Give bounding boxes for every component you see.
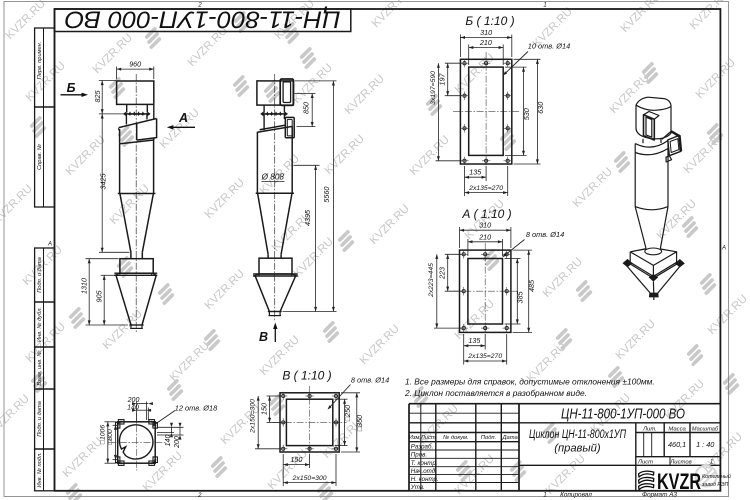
svg-text:1: 1: [543, 493, 546, 499]
svg-text:Т. контр.: Т. контр.: [411, 460, 438, 467]
svg-text:KVZR.RU: KVZR.RU: [453, 52, 497, 96]
svg-text:2х135=270: 2х135=270: [467, 353, 502, 360]
svg-text:В ( 1:10 ): В ( 1:10 ): [282, 369, 331, 383]
svg-text:KVZR.RU: KVZR.RU: [61, 436, 105, 480]
svg-text:Утв.: Утв.: [410, 484, 425, 491]
svg-text:2х150=300: 2х150=300: [292, 475, 327, 482]
svg-text:140: 140: [165, 435, 172, 447]
svg-text:Масса: Масса: [668, 426, 686, 432]
svg-text:KVZR.RU: KVZR.RU: [24, 60, 68, 104]
svg-text:А ( 1:10 ): А ( 1:10 ): [461, 207, 511, 221]
svg-text:ЦН-11-800-1УП-000 ВО: ЦН-11-800-1УП-000 ВО: [65, 6, 341, 33]
svg-text:385: 385: [516, 291, 525, 304]
svg-text:Циклон ЦН-11-800х1УП: Циклон ЦН-11-800х1УП: [529, 429, 627, 441]
svg-text:150: 150: [290, 455, 302, 464]
svg-text:KVZR: KVZR: [657, 469, 701, 494]
svg-text:KVZR.RU: KVZR.RU: [168, 340, 212, 384]
svg-text:630: 630: [536, 102, 545, 114]
svg-text:Н. контр.: Н. контр.: [411, 476, 439, 483]
svg-text:KVZR.RU: KVZR.RU: [4, 0, 48, 42]
svg-text:KVZR.RU: KVZR.RU: [706, 293, 750, 337]
svg-text:А: А: [47, 242, 52, 248]
svg-text:KVZR.RU: KVZR.RU: [368, 203, 412, 247]
svg-text:8 отв. Ø14: 8 отв. Ø14: [526, 230, 564, 239]
svg-text:В: В: [259, 330, 268, 344]
svg-text:1310: 1310: [80, 278, 89, 294]
svg-text:200: 200: [174, 436, 181, 449]
svg-text:KVZR.RU: KVZR.RU: [0, 393, 32, 437]
svg-text:KVZR.RU: KVZR.RU: [694, 57, 738, 101]
svg-text:12 отв. Ø18: 12 отв. Ø18: [175, 403, 218, 412]
svg-text:завод РЭП: завод РЭП: [701, 482, 729, 488]
svg-text:140: 140: [127, 405, 139, 412]
svg-text:197: 197: [438, 73, 447, 86]
svg-text:2х223=445: 2х223=445: [428, 263, 435, 298]
svg-text:Котельный: Котельный: [702, 473, 731, 480]
svg-text:KVZR.RU: KVZR.RU: [108, 183, 152, 227]
svg-text:200: 200: [127, 397, 140, 404]
svg-text:530: 530: [522, 108, 531, 120]
svg-text:№ докум.: № докум.: [443, 435, 469, 441]
svg-text:KVZR.RU: KVZR.RU: [370, 0, 414, 30]
svg-text:KVZR.RU: KVZR.RU: [323, 133, 367, 177]
svg-text:1. Все размеры для справок, до: 1. Все размеры для справок, допустимые о…: [405, 377, 655, 387]
svg-text:Справ. №: Справ. №: [37, 144, 43, 170]
svg-text:□350: □350: [355, 415, 364, 431]
svg-text:ЦН-11-800-1УП-000 ВО: ЦН-11-800-1УП-000 ВО: [561, 407, 685, 423]
svg-text:210: 210: [479, 38, 492, 47]
svg-text:850: 850: [302, 102, 311, 114]
svg-text:Подп. и дата: Подп. и дата: [37, 401, 43, 437]
svg-text:135: 135: [469, 167, 482, 176]
svg-text:KVZR.RU: KVZR.RU: [0, 183, 35, 227]
svg-text:150: 150: [259, 403, 268, 415]
svg-text:Перв. примен.: Перв. примен.: [37, 42, 43, 80]
svg-text:2х135=270: 2х135=270: [468, 185, 503, 192]
svg-text:310: 310: [479, 220, 491, 229]
svg-text:□800: □800: [107, 429, 114, 445]
svg-text:KVZR.RU: KVZR.RU: [291, 62, 335, 106]
svg-text:KVZR.RU: KVZR.RU: [408, 134, 452, 178]
svg-text:10 отв. Ø14: 10 отв. Ø14: [528, 42, 570, 51]
svg-text:Лит.: Лит.: [642, 426, 657, 432]
svg-text:KVZR.RU: KVZR.RU: [358, 323, 402, 367]
svg-text:KVZR.RU: KVZR.RU: [141, 450, 185, 494]
svg-text:3425: 3425: [99, 173, 108, 190]
svg-text:Нач.отд.: Нач.отд.: [411, 468, 437, 475]
svg-text:KVZR.RU: KVZR.RU: [64, 134, 108, 178]
svg-text:Масштаб: Масштаб: [692, 426, 719, 432]
svg-text:825: 825: [93, 90, 102, 103]
svg-text:Инв. № дубл.: Инв. № дубл.: [37, 307, 43, 342]
svg-text:Дата: Дата: [501, 435, 518, 441]
svg-text:905: 905: [95, 290, 104, 303]
svg-text:960: 960: [129, 59, 141, 68]
svg-text:Пров.: Пров.: [411, 452, 427, 459]
svg-text:KVZR.RU: KVZR.RU: [701, 431, 745, 475]
svg-text:KVZR.RU: KVZR.RU: [571, 166, 615, 210]
svg-text:Подп. и дата: Подп. и дата: [37, 257, 43, 293]
svg-text:KVZR.RU: KVZR.RU: [203, 177, 247, 221]
svg-text:485: 485: [527, 279, 536, 292]
svg-text:Листов: Листов: [669, 460, 691, 466]
svg-text:5560: 5560: [322, 187, 331, 203]
svg-text:1: 1: [710, 459, 714, 466]
svg-text:KVZR.RU: KVZR.RU: [24, 321, 68, 365]
svg-text:KVZR.RU: KVZR.RU: [614, 318, 658, 362]
svg-text:Взам. инв. №: Взам. инв. №: [37, 350, 43, 385]
svg-text:Разраб.: Разраб.: [411, 443, 433, 450]
svg-text:(правый): (правый): [554, 443, 601, 455]
svg-text:3х197=590: 3х197=590: [430, 71, 437, 105]
svg-text:KVZR.RU: KVZR.RU: [266, 448, 310, 492]
svg-text:1 : 40: 1 : 40: [696, 440, 714, 449]
svg-text:2: 2: [197, 3, 202, 9]
svg-text:KVZR.RU: KVZR.RU: [688, 0, 732, 32]
svg-text:Лист: Лист: [637, 460, 653, 466]
svg-text:Изм.: Изм.: [409, 435, 421, 441]
svg-text:KVZR.RU: KVZR.RU: [203, 268, 247, 312]
svg-text:2: 2: [197, 493, 202, 499]
svg-text:KVZR.RU: KVZR.RU: [619, 0, 663, 35]
svg-text:KVZR.RU: KVZR.RU: [541, 256, 585, 300]
svg-text:223: 223: [438, 267, 447, 280]
svg-text:□250: □250: [343, 405, 352, 421]
svg-text:460,1: 460,1: [668, 440, 686, 449]
svg-text:Копировал: Копировал: [560, 491, 592, 498]
svg-text:1: 1: [543, 3, 546, 9]
svg-text:□1006: □1006: [99, 425, 106, 444]
svg-text:А: А: [721, 245, 726, 251]
svg-text:KVZR.RU: KVZR.RU: [292, 236, 336, 280]
svg-text:8 отв. Ø14: 8 отв. Ø14: [351, 376, 389, 385]
svg-text:Инв. № подл.: Инв. № подл.: [37, 452, 43, 487]
svg-text:2. Циклон поставляется в разоб: 2. Циклон поставляется в разобранном вид…: [404, 388, 587, 398]
svg-text:Б: Б: [67, 81, 76, 95]
svg-text:2х150=300: 2х150=300: [250, 399, 257, 434]
svg-text:135: 135: [468, 336, 481, 345]
svg-text:310: 310: [480, 28, 492, 37]
svg-text:4395: 4395: [303, 209, 312, 226]
svg-text:Ø 808: Ø 808: [261, 173, 285, 182]
svg-text:А: А: [178, 111, 188, 125]
svg-text:210: 210: [478, 232, 491, 241]
svg-text:KVZR.RU: KVZR.RU: [101, 308, 145, 352]
svg-text:Б ( 1:10 ): Б ( 1:10 ): [465, 14, 514, 28]
svg-text:KVZR.RU: KVZR.RU: [343, 73, 387, 117]
svg-text:Подп.: Подп.: [481, 435, 496, 441]
svg-text:Формат А3: Формат А3: [642, 491, 677, 498]
svg-text:Лист: Лист: [420, 435, 436, 441]
